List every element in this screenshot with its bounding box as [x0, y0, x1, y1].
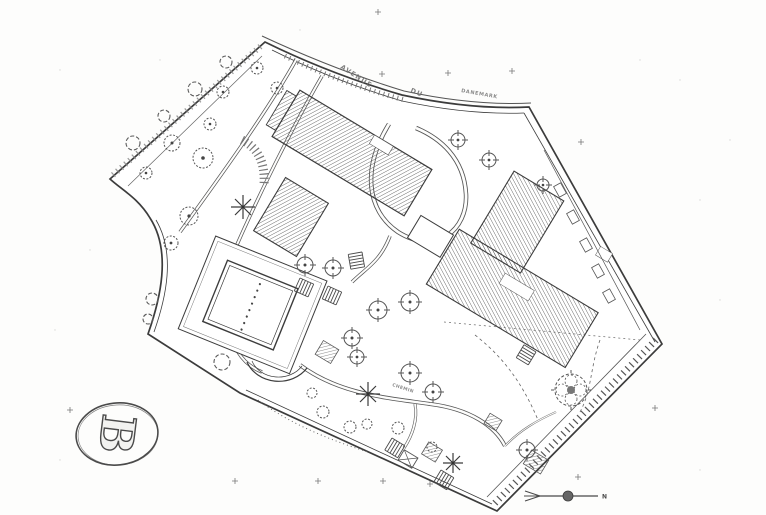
north-label: N — [602, 494, 607, 501]
north-arrow-hub — [563, 491, 573, 501]
north-arrow-fishtail — [524, 491, 540, 501]
site-plan-drawing: AVENUE DU DANEMARK CHEMIN N B — [0, 0, 766, 515]
sheet-letter: B — [88, 411, 146, 456]
sheet-label: B — [73, 399, 161, 469]
north-arrow: N — [524, 491, 607, 501]
site-boundary — [110, 36, 662, 511]
site-plan-page: AVENUE DU DANEMARK CHEMIN N B — [0, 0, 766, 515]
street-word-danemark: DANEMARK — [461, 88, 499, 100]
